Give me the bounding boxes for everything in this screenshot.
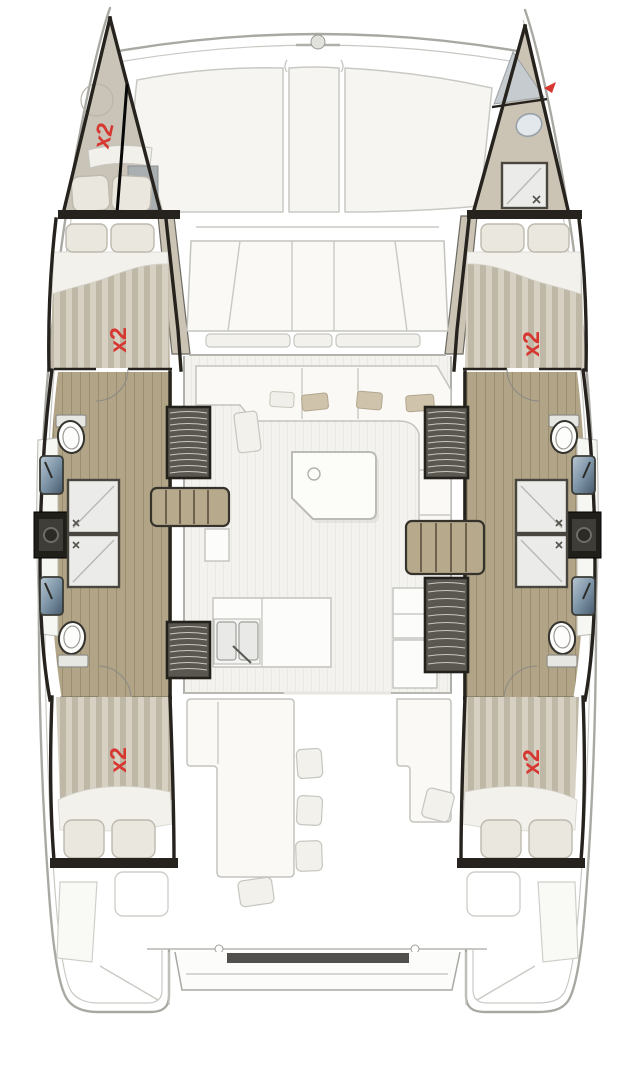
cockpit-stool-2 <box>296 795 322 825</box>
front-backrest-right <box>336 334 420 347</box>
starboard-aft-mattress <box>463 697 579 800</box>
port-aft-wall-outer <box>51 697 54 860</box>
port-forward-pillow-left <box>66 224 107 252</box>
forward-cockpit <box>158 216 477 355</box>
port-cabinet <box>205 529 229 561</box>
port-forepeak-label: x2 <box>88 120 119 150</box>
toilet-tank <box>58 655 88 667</box>
port-aft-pillow-left <box>64 820 104 858</box>
starboard-stern-locker <box>467 872 520 916</box>
foredeck <box>113 34 523 212</box>
rail-fitting-right <box>411 945 419 953</box>
port-aft-bulkhead <box>50 858 178 868</box>
port-louver-locker-aft <box>167 622 210 678</box>
cockpit-stool-3 <box>295 841 322 872</box>
port-aft-cabin: x2 <box>50 697 178 868</box>
port-aft-pillow-right <box>112 820 155 858</box>
salon-table <box>292 452 376 519</box>
starboard-hull-window <box>567 512 601 558</box>
starboard-stern-line <box>477 966 535 1000</box>
transom-step-shadow <box>227 953 409 963</box>
starboard-aft-label: x2 <box>518 749 544 775</box>
front-backrest-middle <box>294 334 332 347</box>
rail-fitting-left <box>215 945 223 953</box>
port-forward-pillow-right <box>111 224 154 252</box>
sofa-cushion-2 <box>356 391 382 410</box>
cockpit-table-bench <box>187 699 294 877</box>
port-aft-toilet <box>57 620 88 667</box>
forepeak-pillow-left <box>71 175 110 212</box>
front-backrest-left <box>206 334 290 347</box>
port-sugarscoop <box>57 882 97 962</box>
starboard-bathroom <box>406 369 601 700</box>
starboard-louver-locker-aft <box>425 578 468 672</box>
port-forward-label: x2 <box>105 327 131 353</box>
catamaran-floor-plan: x2 x2 x2 <box>0 0 635 1080</box>
starboard-aft-bulkhead <box>457 858 585 868</box>
port-forward-bulkhead <box>58 210 180 219</box>
cockpit-stool-1 <box>296 748 323 779</box>
galley-sink-basin-left <box>217 622 236 660</box>
sofa-cushion-1 <box>301 393 329 412</box>
port-stern-locker <box>115 872 168 916</box>
starboard-aft-cabin: x2 <box>457 697 585 868</box>
aft-cockpit <box>147 693 487 1005</box>
sofa-pillow-white <box>270 391 295 407</box>
beam-fitting <box>311 35 325 49</box>
starboard-aft-pillow-right <box>529 820 572 858</box>
starboard-aft-wall-outer <box>581 697 584 860</box>
starboard-staircase <box>406 521 484 574</box>
starboard-sugarscoop <box>538 882 578 962</box>
trampoline-panel-middle <box>289 67 339 212</box>
front-lounge-seat <box>187 241 448 331</box>
starboard-forward-pillow-left <box>481 224 524 252</box>
starboard-forward-bulkhead <box>467 210 582 219</box>
starboard-aft-pillow-left <box>481 820 521 858</box>
port-staircase <box>151 488 229 526</box>
salon-side-seat <box>234 411 262 454</box>
toilet-tank <box>547 655 577 667</box>
trampoline-panel-right <box>345 68 492 212</box>
starboard-forward-label: x2 <box>518 331 544 357</box>
panel-hook-left <box>285 60 287 72</box>
port-hull-window <box>34 512 68 558</box>
port-louver-locker-forward <box>167 407 210 478</box>
cockpit-chair <box>237 877 274 907</box>
panel-hook-right <box>341 60 343 72</box>
floor-plan-drawing: x2 x2 x2 <box>0 0 635 1080</box>
port-aft-label: x2 <box>105 747 131 773</box>
port-stern-line <box>100 966 158 1000</box>
starboard-louver-locker-forward <box>425 407 468 478</box>
starboard-forward-pillow-right <box>528 224 569 252</box>
